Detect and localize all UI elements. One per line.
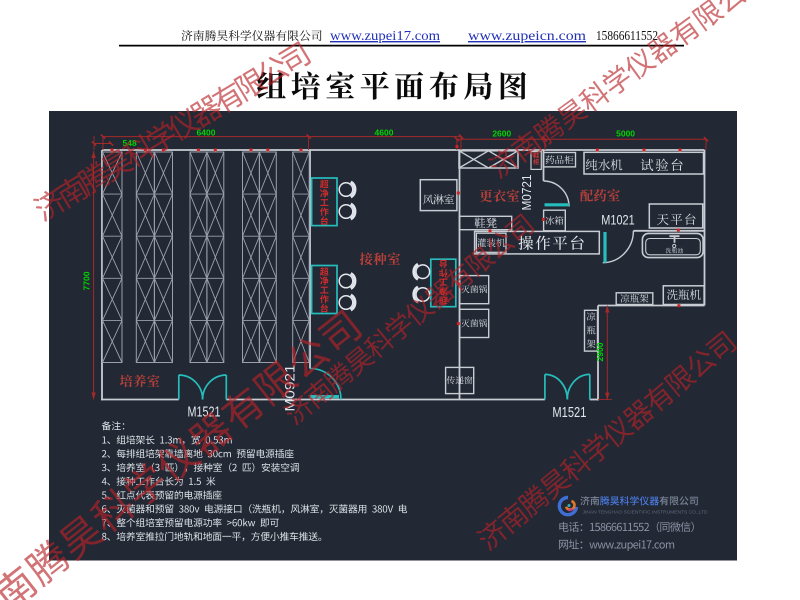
svg-text:www.zupei17.com: www.zupei17.com [330,29,440,44]
svg-text:2600: 2600 [492,128,511,138]
svg-text:15866611552: 15866611552 [596,28,658,43]
svg-text:M1521: M1521 [552,405,586,421]
svg-text:JINAN TENGHAO SCIENTIFIC INSTR: JINAN TENGHAO SCIENTIFIC INSTRUMENTS CO.… [583,510,709,516]
svg-text:4600: 4600 [375,127,394,137]
svg-text:7700: 7700 [82,271,92,290]
svg-text:M0721: M0721 [520,174,534,210]
svg-text:2900: 2900 [595,342,605,361]
svg-text:M1021: M1021 [601,212,635,228]
svg-text:www.zupeicn.com: www.zupeicn.com [468,29,586,44]
svg-text:5000: 5000 [616,128,635,138]
